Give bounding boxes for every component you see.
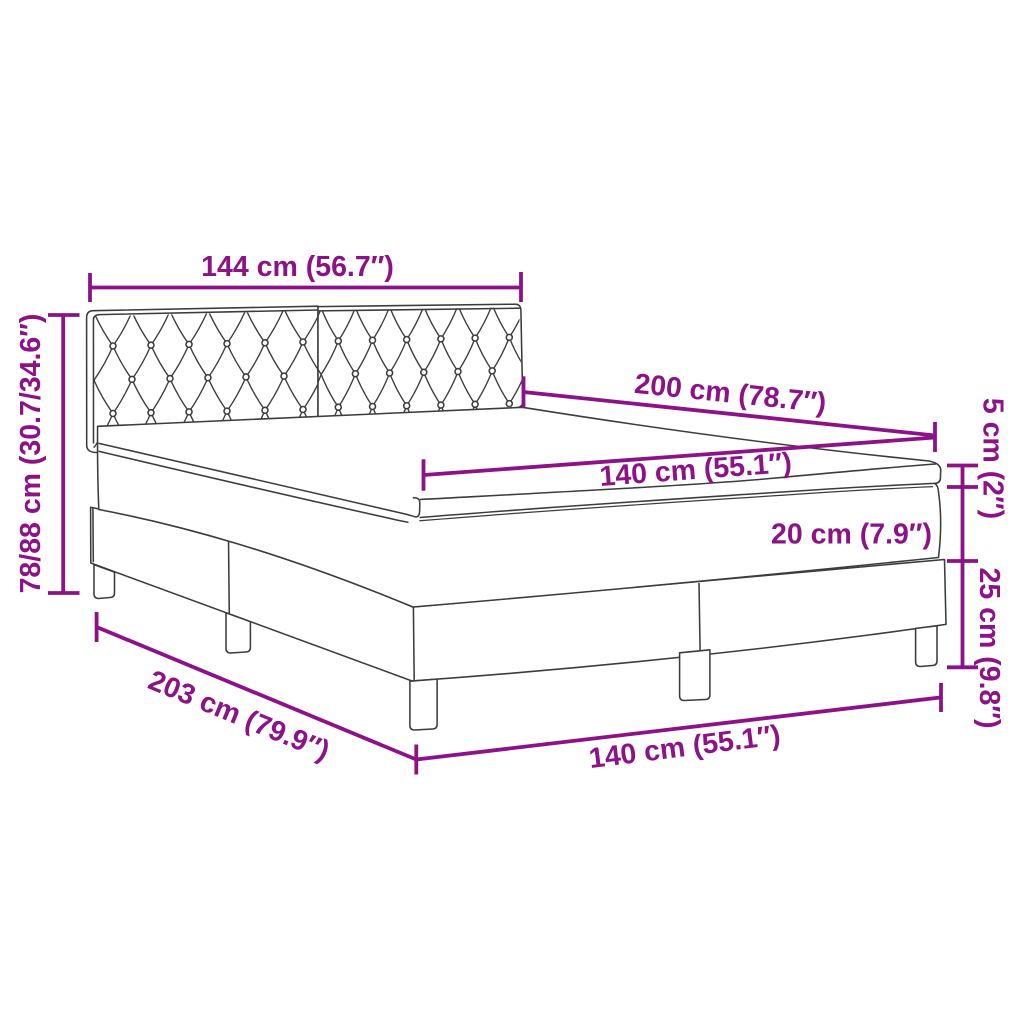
svg-text:78/88 cm (30.7/34.6″): 78/88 cm (30.7/34.6″) — [15, 314, 47, 594]
svg-text:5 cm (2″): 5 cm (2″) — [977, 398, 1009, 519]
svg-text:144 cm (56.7″): 144 cm (56.7″) — [201, 251, 394, 283]
svg-text:25 cm (9.8″): 25 cm (9.8″) — [973, 568, 1005, 729]
svg-text:20 cm (7.9″): 20 cm (7.9″) — [771, 519, 932, 551]
